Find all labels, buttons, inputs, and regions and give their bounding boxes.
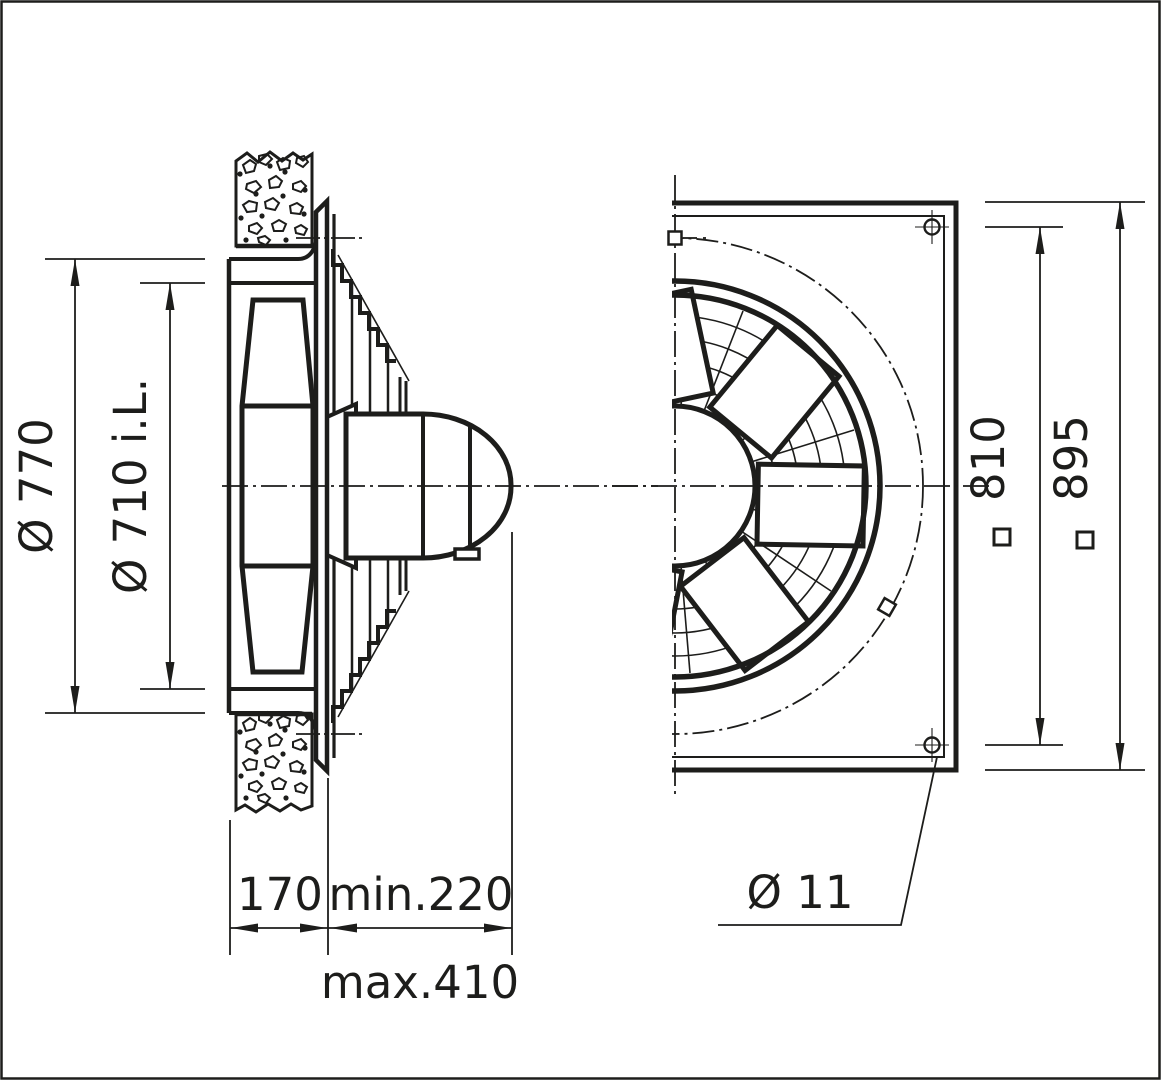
bolt-spacing-label: 810 — [962, 415, 1015, 501]
outer-diameter-label: Ø 770 — [10, 418, 63, 554]
dimension-inner-diameter: Ø 710 i.L. — [104, 283, 205, 689]
wall-depth-label: 170 — [237, 868, 323, 921]
fan-technical-drawing: Ø 770 Ø 710 i.L. 170 min.220 max.410 — [0, 0, 1161, 1080]
square-symbol-810 — [994, 529, 1010, 545]
square-hole-marker-side — [878, 598, 896, 616]
dimension-bolt-hole: Ø 11 — [718, 757, 937, 925]
min-clearance-label: min.220 — [328, 868, 513, 921]
drawing-border — [2, 2, 1160, 1079]
dimensional-drawing-page: Ø 770 Ø 710 i.L. 170 min.220 max.410 — [0, 0, 1161, 1080]
inner-diameter-label: Ø 710 i.L. — [104, 378, 157, 594]
wall-section-top — [236, 152, 312, 246]
max-depth-label: max.410 — [321, 956, 519, 1009]
motor-terminal-box — [455, 549, 479, 559]
side-view — [222, 152, 658, 812]
square-symbol-895 — [1077, 532, 1093, 548]
square-hole-marker-top — [669, 232, 707, 245]
plate-size-label: 895 — [1045, 415, 1098, 501]
bolt-hole-diameter-label: Ø 11 — [747, 866, 854, 919]
wall-section-bottom — [236, 712, 312, 812]
